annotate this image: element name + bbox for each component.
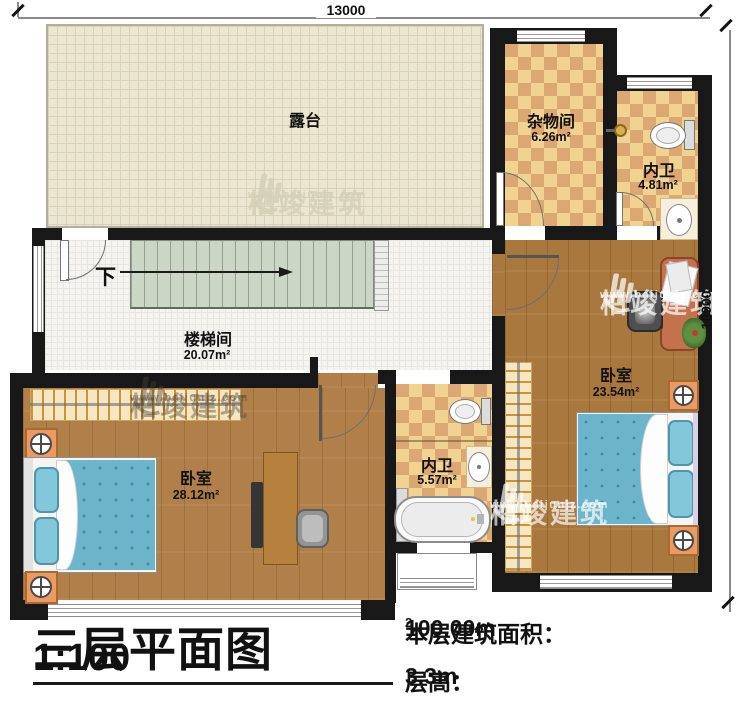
toilet-tank-icon [481, 398, 491, 425]
room-label-storage: 杂物间 [527, 108, 575, 132]
pillow [668, 420, 694, 466]
watermark-url: www.baijunjz.com [248, 190, 367, 202]
plan-scale: 1:100 [33, 637, 130, 680]
pillow [34, 517, 59, 565]
wall [492, 316, 505, 575]
floor-plan: 下 [0, 0, 750, 705]
bathroom-partition-line [396, 440, 492, 442]
floor-height-line: 层高：3.3m [405, 663, 750, 695]
pillow [668, 470, 694, 518]
toilet-bowl-icon [656, 127, 680, 144]
floor-area-superscript: 2 [405, 615, 412, 630]
stair-hall-window-icon [33, 246, 44, 332]
bed-headboard [693, 413, 698, 525]
wall [385, 373, 396, 603]
lamp-cross [682, 387, 684, 404]
wall [396, 542, 417, 553]
bed-blanket [640, 414, 668, 524]
dimension-line-right [729, 30, 731, 612]
bathtub-faucet-icon [477, 514, 484, 524]
monitor-icon [251, 482, 263, 548]
dimension-tick [699, 4, 712, 17]
lamp-cross [40, 578, 42, 596]
room-area-stair-hall: 20.07m² [184, 348, 231, 362]
room-area-storage: 6.26m² [531, 130, 571, 144]
stairs [130, 240, 374, 309]
room-label-right-bedroom: 卧室 [600, 362, 632, 386]
dimension-label-right: 10900 [698, 286, 714, 334]
floor-area-line: 本层建筑面积：100.00m2 [405, 615, 750, 647]
wall-fixture-icon [614, 124, 627, 137]
room-label-terrace: 露台 [289, 107, 321, 131]
lamp-cross [40, 435, 42, 453]
pillow [34, 467, 59, 513]
stairs-end-edge [374, 240, 389, 311]
storage-window-icon [517, 30, 585, 42]
upper-bathroom-window-icon [627, 77, 692, 89]
wall [450, 370, 492, 384]
room-area-middle-bathroom: 5.57m² [417, 473, 457, 487]
wall [10, 373, 23, 620]
floor-area-value: 100.00m [405, 615, 496, 642]
room-label-stair-hall: 楼梯间 [184, 326, 232, 350]
right-bedroom-doorway-floor [492, 254, 505, 316]
room-label-left-bedroom: 卧室 [180, 465, 212, 489]
toilet-bowl-icon [455, 404, 475, 419]
sink-drain-icon [477, 465, 481, 469]
wall [492, 228, 505, 254]
sink-drain-icon [677, 218, 682, 223]
watermark-url: www.baijunjz.com [130, 393, 249, 405]
right-bedroom-window-icon [540, 575, 672, 589]
plan-title-row: 三层平面图 1:100 [33, 618, 405, 680]
wall [361, 600, 395, 620]
stairs-direction-line [120, 271, 281, 273]
room-area-upper-bathroom: 4.81m² [638, 178, 678, 192]
bathtub-faucet-dot [471, 517, 475, 521]
wall [470, 542, 492, 553]
dimension-label-top: 13000 [316, 2, 376, 18]
dimension-tick [719, 19, 732, 32]
wall [310, 357, 318, 375]
room-area-left-bedroom: 28.12m² [173, 488, 220, 502]
room-area-right-bedroom: 23.54m² [593, 385, 640, 399]
wall-fixture-stem [606, 129, 615, 132]
watermark-url: www.baijunjz.com [490, 500, 609, 512]
stairs-direction-arrow-icon [279, 267, 293, 277]
title-underline [33, 682, 393, 685]
bed-headboard [24, 458, 33, 572]
floor-height-value: 3.3m [405, 663, 457, 690]
stairs-down-label: 下 [95, 261, 116, 291]
desk [263, 452, 298, 565]
bay-window-glazing-icon [400, 578, 474, 588]
wall [32, 228, 62, 240]
wall [545, 226, 617, 240]
office-chair-seat [302, 515, 323, 542]
dimension-tick [721, 596, 734, 609]
wall [108, 228, 490, 240]
wardrobe-rod [517, 362, 520, 571]
lamp-cross [682, 532, 684, 549]
